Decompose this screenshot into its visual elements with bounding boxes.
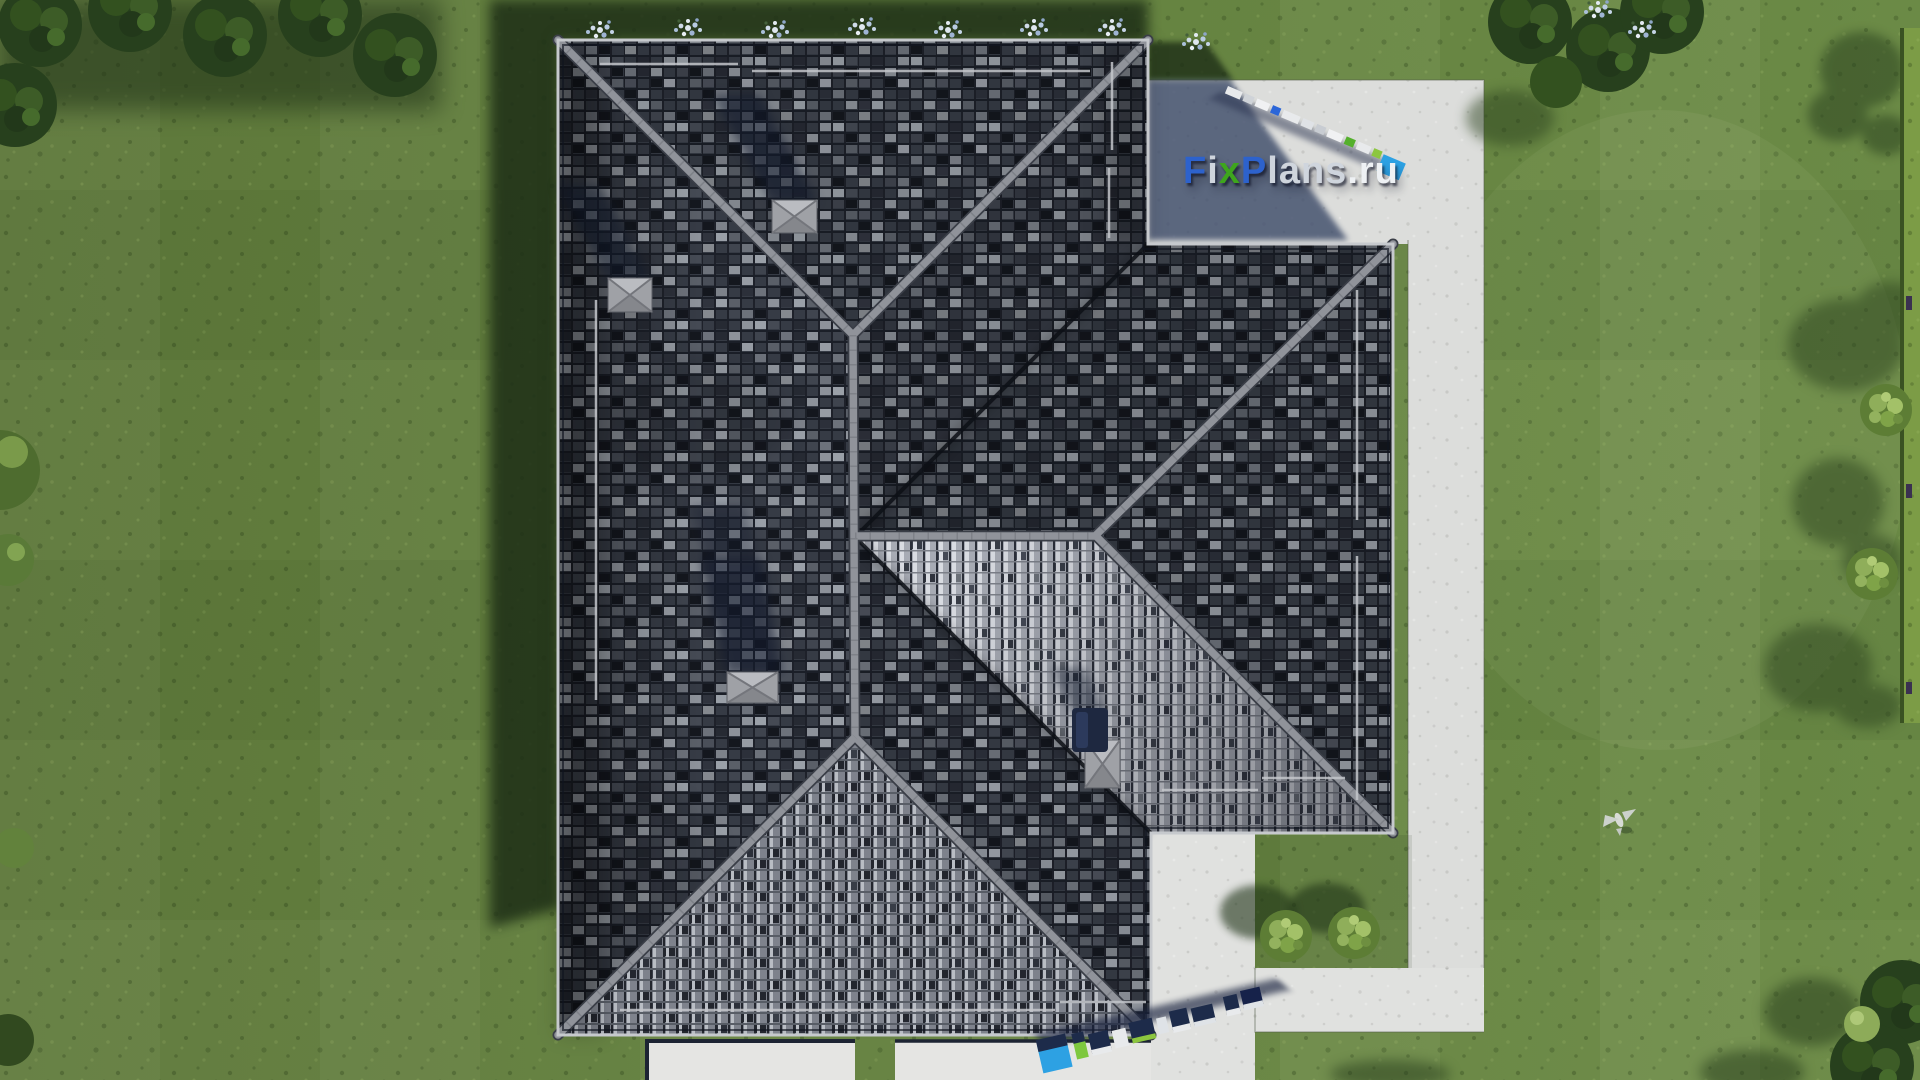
roof-vent [608, 278, 652, 312]
chimney-pipe [1072, 708, 1108, 752]
bush [1860, 384, 1912, 436]
watermark-text-lans: lans [1267, 150, 1347, 192]
roof-vent [727, 672, 778, 703]
watermark-letter-x: x [1219, 150, 1241, 192]
bottom-pad-b [895, 1040, 1151, 1080]
roof-vent [772, 200, 817, 233]
bottom-pad-a [647, 1040, 855, 1080]
hedge-right [1900, 28, 1920, 723]
watermark-letter-f: F [1183, 150, 1207, 192]
watermark-letter-i: i [1207, 150, 1219, 192]
watermark-fixplans: FixPlans.ru [1183, 150, 1399, 193]
scene-canvas [0, 0, 1920, 1080]
watermark-text-ru: .ru [1347, 150, 1399, 192]
bush [1846, 548, 1898, 600]
aerial-render: FixPlans.ru [0, 0, 1920, 1080]
watermark-letter-p: P [1241, 150, 1267, 192]
